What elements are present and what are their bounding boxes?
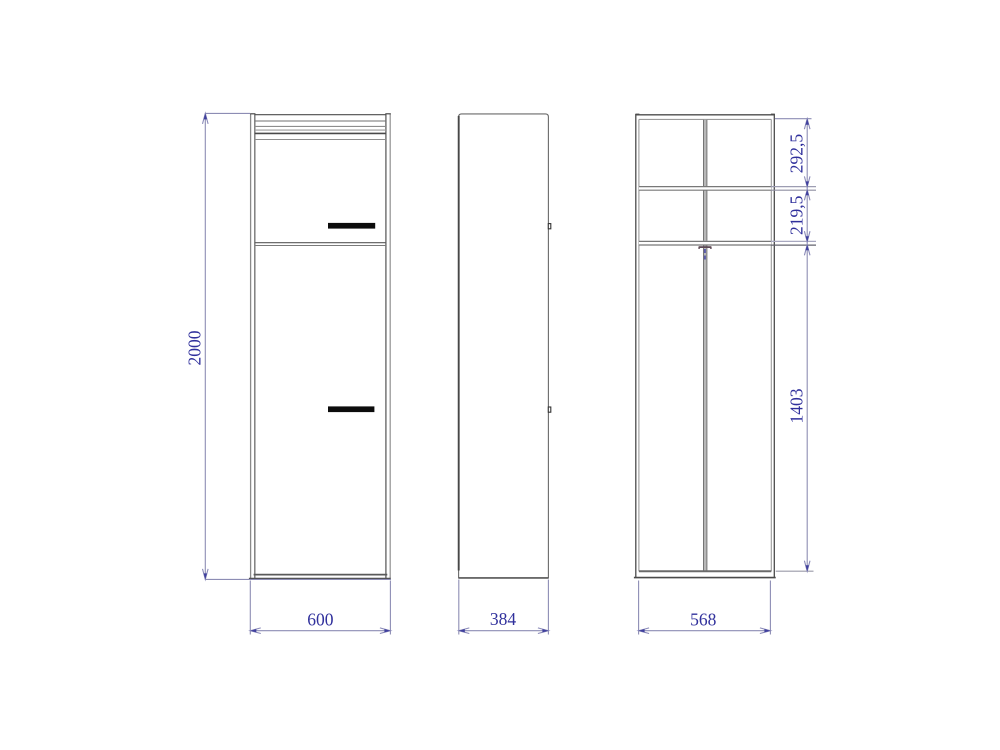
svg-text:219,5: 219,5	[787, 195, 807, 235]
svg-text:600: 600	[307, 609, 334, 629]
svg-text:292,5: 292,5	[787, 134, 807, 174]
svg-text:1403: 1403	[787, 388, 807, 423]
svg-text:568: 568	[690, 609, 717, 629]
svg-text:2000: 2000	[184, 330, 204, 365]
svg-text:384: 384	[490, 609, 517, 629]
